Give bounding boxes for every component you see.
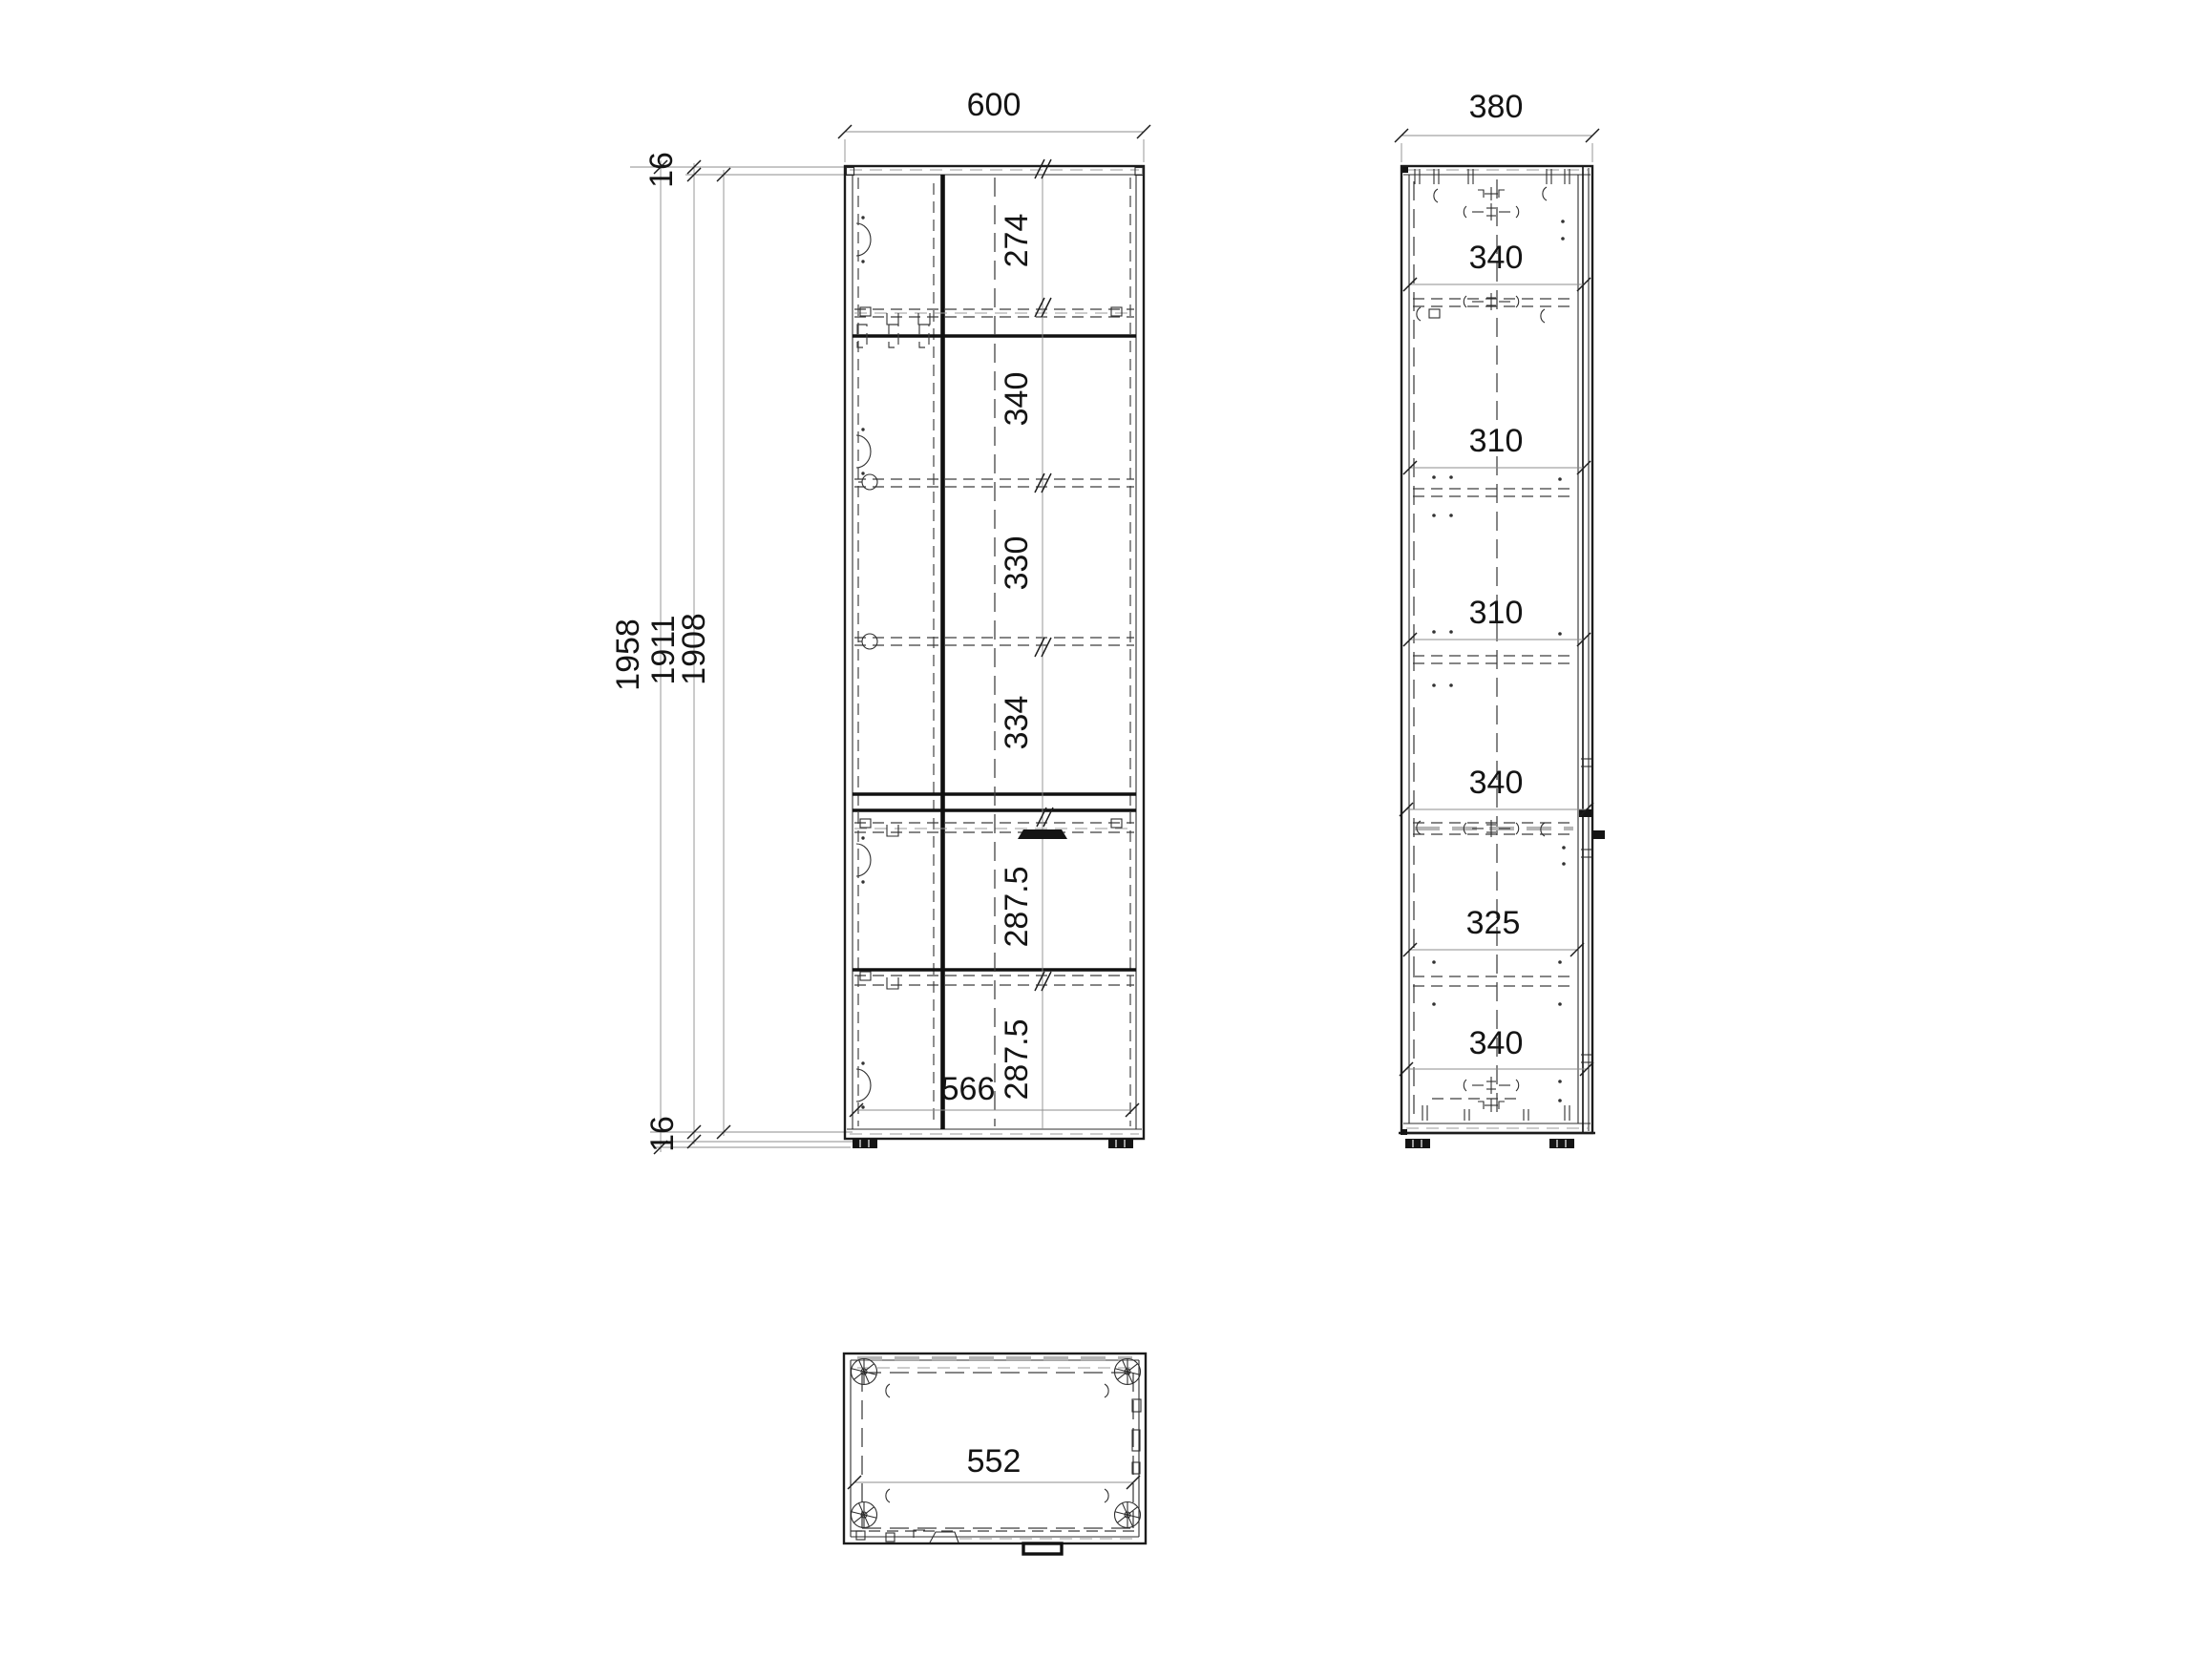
cam-fitting-icon (862, 474, 877, 490)
foot-icon (1405, 1139, 1430, 1148)
foot-icon (1549, 1139, 1574, 1148)
fv-height-total-label: 1958 (610, 619, 646, 691)
handle-icon (1023, 1543, 1062, 1554)
sv-depth-label: 340 (1469, 765, 1524, 801)
front-view: 600 16 1958 1911 1908 16 (610, 87, 1150, 1154)
wheel-icon (852, 1502, 877, 1528)
drawing-sheet: 600 16 1958 1911 1908 16 (0, 0, 2212, 1658)
cam-fitting-icon (862, 634, 877, 649)
tv-dim-inner-width: 552 (848, 1443, 1140, 1489)
sv-carcass (1399, 166, 1595, 1135)
sv-depth-label: 310 (1469, 423, 1524, 459)
wheel-icon (1115, 1502, 1141, 1528)
tv-inner-width-label: 552 (967, 1443, 1022, 1480)
sv-depth-label: 340 (1469, 240, 1524, 276)
fv-section-label: 330 (999, 536, 1035, 591)
handle-icon (1592, 830, 1605, 839)
sv-feet (1405, 1139, 1574, 1148)
fv-section-label: 274 (999, 214, 1035, 268)
side-view: 380 (1395, 89, 1605, 1148)
fv-inner-width-label: 566 (941, 1071, 996, 1107)
sv-dim-width: 380 (1395, 89, 1599, 162)
sv-depth-label: 310 (1469, 595, 1524, 631)
sv-depth-label: 325 (1466, 905, 1521, 941)
wheel-icon (852, 1359, 877, 1385)
cabinet-technical-drawing: 600 16 1958 1911 1908 16 (0, 0, 2212, 1658)
top-view: 552 (844, 1354, 1146, 1554)
fv-dim-heights: 16 1958 1911 1908 16 (610, 152, 853, 1154)
fv-section-label: 340 (999, 372, 1035, 427)
sv-width-label: 380 (1469, 89, 1524, 125)
foot-icon (853, 1139, 877, 1148)
hinge-icon (856, 836, 871, 883)
fv-drawer-handle (1018, 829, 1067, 839)
fv-dim-width: 600 (838, 87, 1150, 162)
fv-section-label: 287.5 (999, 1018, 1035, 1100)
handle-icon (1018, 829, 1067, 839)
fv-dim-inner-width: 566 (850, 1071, 1139, 1117)
foot-icon (1108, 1139, 1133, 1148)
fv-carcass (845, 159, 1144, 1139)
fv-width-label: 600 (967, 87, 1022, 123)
fv-top-board-label: 16 (643, 152, 680, 188)
sv-top-fittings (1415, 169, 1569, 241)
wheel-icon (1115, 1359, 1141, 1385)
fv-feet (853, 1139, 1133, 1148)
fv-bottom-board-label: 16 (644, 1116, 681, 1152)
fv-height-inner-label: 1908 (676, 613, 712, 685)
fv-section-label: 287.5 (999, 866, 1035, 947)
fv-section-dims: 274 340 330 334 287.5 287.5 (999, 214, 1035, 1101)
sv-depth-label: 340 (1469, 1025, 1524, 1061)
fv-section-label: 334 (999, 696, 1035, 750)
